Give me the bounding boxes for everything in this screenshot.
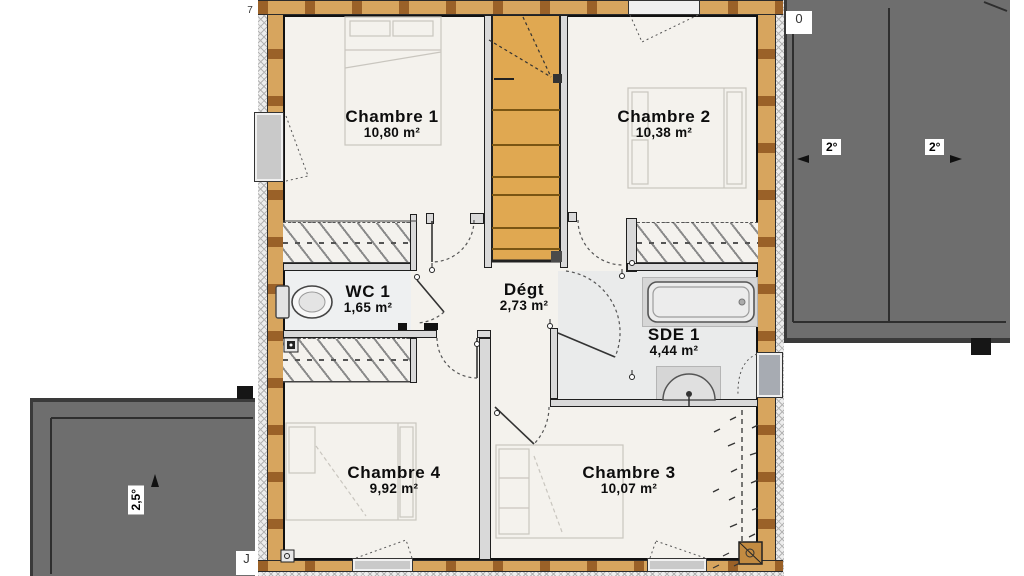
room-area: 10,38 m² xyxy=(617,125,710,141)
wc-wall-side xyxy=(410,214,417,271)
partition xyxy=(470,213,484,224)
window-bottom-chambre3 xyxy=(647,558,707,572)
washbasin-mat xyxy=(656,366,721,402)
sde-wall-north xyxy=(627,263,758,271)
room-label-chambre4: Chambre 4 9,92 m² xyxy=(347,464,440,497)
staircase xyxy=(492,15,560,262)
window-top xyxy=(628,0,700,15)
exterior-wall-right xyxy=(757,0,776,576)
room-label-wc1: WC 1 1,65 m² xyxy=(344,283,393,316)
room-name: Dégt xyxy=(500,281,549,298)
room-label-chambre2: Chambre 2 10,38 m² xyxy=(617,108,710,141)
sde-wall-west xyxy=(550,328,558,399)
wc-wall-bottom xyxy=(283,330,437,338)
low-ceiling-strip xyxy=(283,222,410,263)
low-ceiling-strip xyxy=(637,222,758,263)
room-area: 10,80 m² xyxy=(345,125,438,141)
exterior-wall-top xyxy=(258,0,783,15)
partition xyxy=(568,212,577,222)
floor-plan-canvas: Chambre 1 10,80 m² Chambre 2 10,38 m² WC… xyxy=(0,0,1024,576)
room-label-chambre1: Chambre 1 10,80 m² xyxy=(345,108,438,141)
room-name: Chambre 4 xyxy=(347,464,440,481)
slope-label-right-roof-left: 2° xyxy=(822,139,841,155)
room-name: Chambre 2 xyxy=(617,108,710,125)
room-name: Chambre 3 xyxy=(582,464,675,481)
insulation-left xyxy=(258,0,267,576)
right-roof-area xyxy=(784,0,1010,343)
slope-label-right-roof-right: 2° xyxy=(925,139,944,155)
chimney-icon xyxy=(971,338,991,355)
partition xyxy=(426,213,434,224)
insulation-bottom xyxy=(258,572,783,576)
room-area: 9,92 m² xyxy=(347,481,440,497)
room-area: 10,07 m² xyxy=(582,481,675,497)
bathtub-mat xyxy=(642,277,758,327)
slope-label-left-roof: 2,5° xyxy=(128,485,144,514)
room-label-degt: Dégt 2,73 m² xyxy=(500,281,549,314)
exterior-wall-left xyxy=(267,0,284,576)
partial-label-left-roof: J xyxy=(236,551,257,575)
window-bottom-chambre4 xyxy=(352,558,413,572)
room-area: 2,73 m² xyxy=(500,298,549,314)
sde-wall-south xyxy=(550,399,758,407)
low-ceiling-strip xyxy=(283,338,410,382)
partial-label-top-left: 7 xyxy=(243,3,257,18)
partition xyxy=(410,338,417,383)
room-name: SDE 1 xyxy=(648,326,700,343)
window-left xyxy=(254,112,284,182)
partial-label-right-roof: 0 xyxy=(786,11,812,34)
insulation-right xyxy=(776,0,784,576)
room-label-sde1: SDE 1 4,44 m² xyxy=(648,326,700,359)
wc-wall-top xyxy=(283,263,417,271)
room-label-chambre3: Chambre 3 10,07 m² xyxy=(582,464,675,497)
room-area: 1,65 m² xyxy=(344,300,393,316)
stairwell-wall-right xyxy=(560,15,568,268)
room-name: WC 1 xyxy=(344,283,393,300)
window-right-sde xyxy=(756,352,783,398)
stairwell-wall-left xyxy=(484,15,492,268)
partition xyxy=(477,330,491,338)
room-name: Chambre 1 xyxy=(345,108,438,125)
room-area: 4,44 m² xyxy=(648,343,700,359)
chambre4-wall-right xyxy=(479,338,491,560)
chimney-icon xyxy=(237,386,253,399)
